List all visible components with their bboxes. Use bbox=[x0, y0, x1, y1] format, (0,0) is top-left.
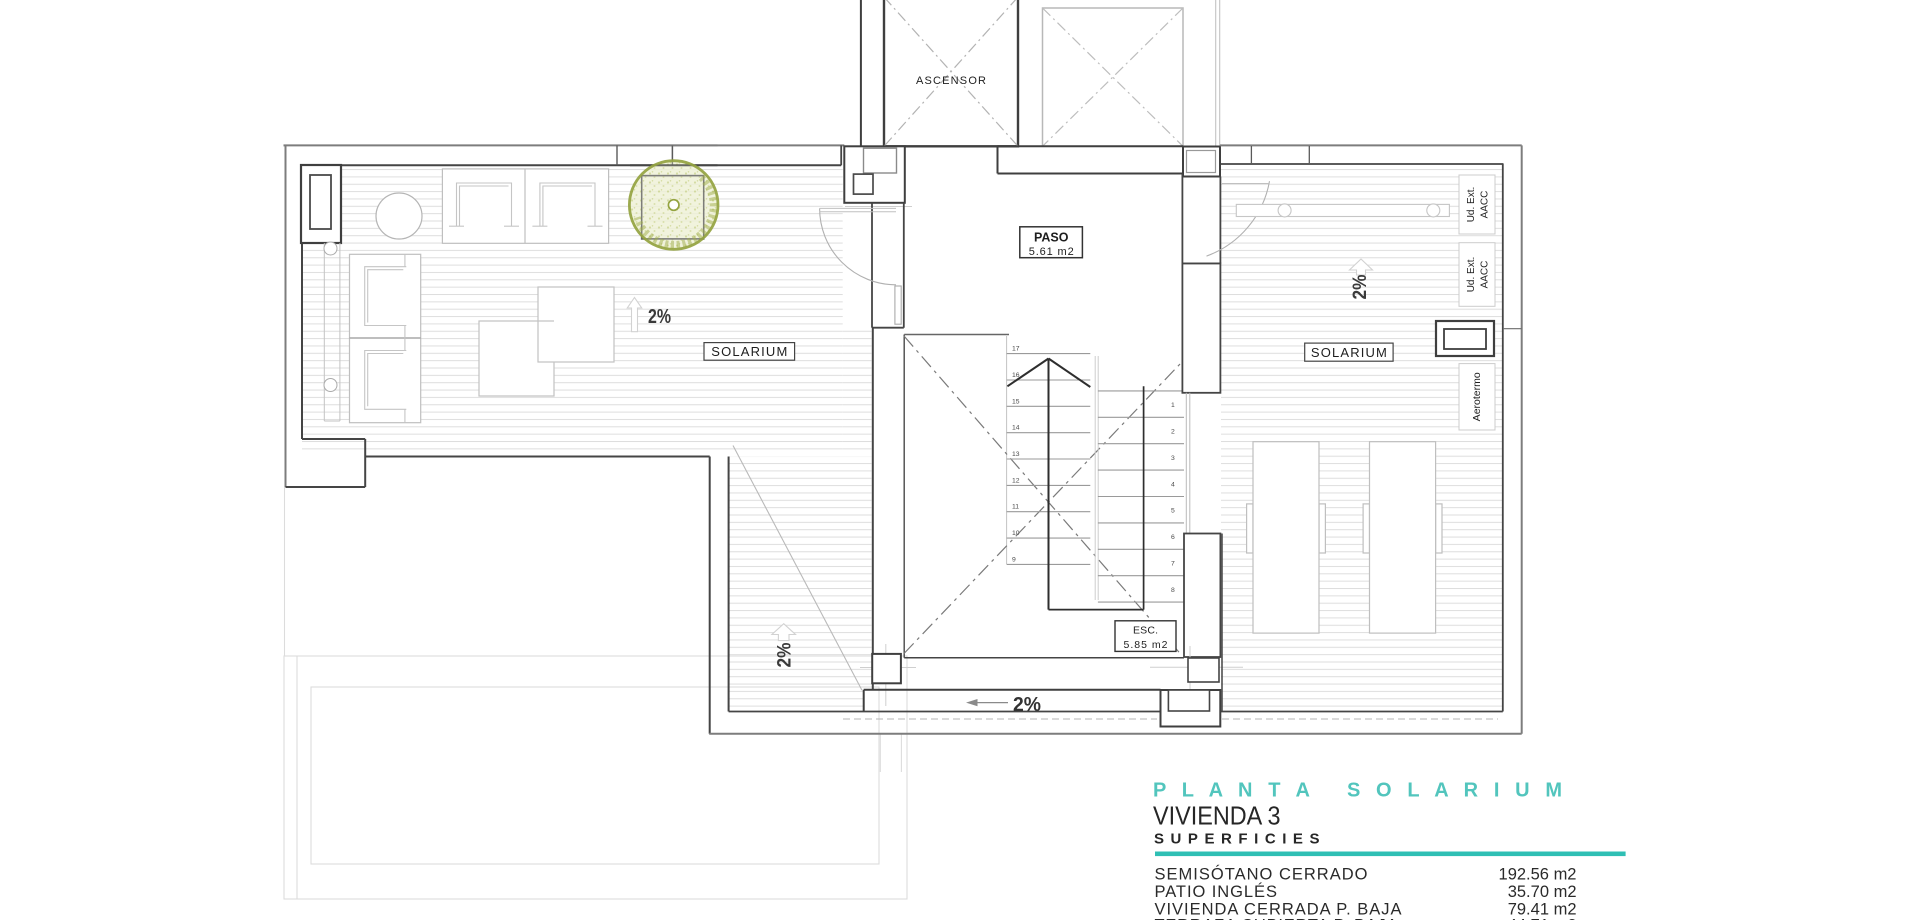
svg-text:4: 4 bbox=[1171, 481, 1175, 488]
svg-text:2%: 2% bbox=[648, 306, 671, 328]
svg-text:SEMISÓTANO CERRADO: SEMISÓTANO CERRADO bbox=[1155, 864, 1368, 883]
svg-text:13: 13 bbox=[1012, 451, 1020, 458]
svg-text:5.85 m2: 5.85 m2 bbox=[1124, 639, 1168, 651]
svg-text:7: 7 bbox=[1171, 561, 1175, 568]
svg-text:AACC: AACC bbox=[1480, 191, 1491, 219]
svg-text:SUPERFICIES: SUPERFICIES bbox=[1154, 831, 1320, 848]
svg-text:3: 3 bbox=[1171, 455, 1175, 462]
svg-text:Ud. Ext.: Ud. Ext. bbox=[1466, 257, 1477, 293]
svg-text:14: 14 bbox=[1012, 425, 1020, 432]
svg-text:17: 17 bbox=[1012, 346, 1020, 353]
svg-text:9: 9 bbox=[1012, 556, 1016, 563]
svg-text:10: 10 bbox=[1012, 530, 1020, 537]
svg-text:44.71 m2: 44.71 m2 bbox=[1508, 917, 1577, 920]
svg-text:SOLARIUM: SOLARIUM bbox=[711, 344, 787, 359]
svg-text:ASCENSOR: ASCENSOR bbox=[916, 75, 986, 87]
svg-text:15: 15 bbox=[1012, 398, 1020, 405]
svg-text:192.56 m2: 192.56 m2 bbox=[1499, 865, 1577, 883]
svg-text:11: 11 bbox=[1012, 504, 1019, 511]
svg-text:5: 5 bbox=[1171, 508, 1175, 515]
svg-text:AACC: AACC bbox=[1480, 261, 1491, 289]
svg-text:P L A N T A S O L A R I U M: P L A N T A S O L A R I U M bbox=[1153, 780, 1562, 802]
svg-text:SOLARIUM: SOLARIUM bbox=[1311, 345, 1387, 360]
svg-text:2%: 2% bbox=[775, 642, 796, 667]
svg-text:PATIO INGLÉS: PATIO INGLÉS bbox=[1155, 882, 1278, 901]
svg-text:35.70 m2: 35.70 m2 bbox=[1508, 883, 1577, 901]
svg-text:8: 8 bbox=[1171, 587, 1175, 594]
svg-text:Aerotermo: Aerotermo bbox=[1471, 372, 1483, 421]
svg-text:2: 2 bbox=[1171, 429, 1175, 436]
svg-text:2%: 2% bbox=[1350, 274, 1371, 299]
svg-text:VIVIENDA 3: VIVIENDA 3 bbox=[1153, 801, 1281, 831]
svg-text:TERRAZA CUBIERTA P. BAJA: TERRAZA CUBIERTA P. BAJA bbox=[1155, 917, 1398, 920]
svg-text:12: 12 bbox=[1012, 477, 1020, 484]
svg-text:Ud. Ext.: Ud. Ext. bbox=[1466, 187, 1477, 223]
svg-text:6: 6 bbox=[1171, 534, 1175, 541]
svg-text:ESC.: ESC. bbox=[1133, 624, 1158, 636]
svg-text:5.61 m2: 5.61 m2 bbox=[1029, 246, 1074, 258]
svg-text:1: 1 bbox=[1171, 402, 1175, 409]
svg-text:PASO: PASO bbox=[1034, 231, 1069, 245]
svg-text:2%: 2% bbox=[1013, 694, 1041, 716]
